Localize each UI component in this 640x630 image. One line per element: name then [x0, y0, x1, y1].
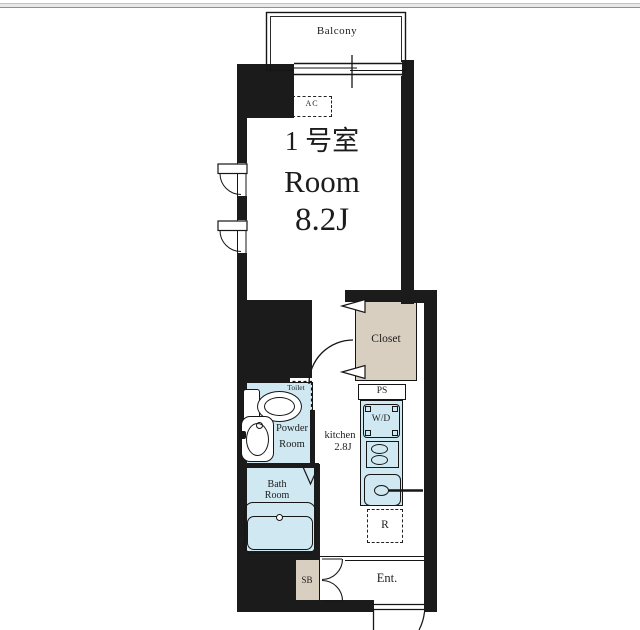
vanity-drain	[256, 422, 263, 429]
balcony-label: Balcony	[317, 26, 357, 37]
stove-burner	[371, 455, 388, 465]
toilet-label: Toilet	[287, 384, 304, 392]
plan-linework	[0, 0, 640, 630]
washer-dryer-foot	[365, 406, 371, 412]
closet-label: Closet	[371, 334, 400, 346]
toilet-bowl-inner	[264, 397, 295, 416]
unit-number-label: 1 号室	[285, 128, 359, 155]
shoe-box-label: SB	[301, 576, 312, 585]
kitchen-size-label: 2.8J	[334, 443, 351, 454]
pipe-space-label: PS	[377, 387, 388, 397]
refrigerator-label: R	[381, 520, 389, 532]
powder-room-label-line1: Powder	[276, 424, 308, 435]
washer-dryer-label: W/D	[372, 415, 390, 425]
kitchen-sink-basin	[374, 485, 389, 496]
washer-dryer-foot	[392, 406, 398, 412]
washer-dryer-foot	[392, 430, 398, 436]
entrance-label: Ent.	[377, 572, 397, 585]
room-label: Room	[284, 166, 360, 197]
floor-plan: Balcony AC 1 号室 Room 8.2J Closet PS Toil…	[0, 0, 640, 630]
vanity-faucet	[239, 431, 246, 439]
kitchen-label-line1: kitchen	[325, 431, 356, 442]
bath-room-label-line1: Bath	[268, 480, 287, 490]
bathtub-drain	[276, 514, 283, 521]
room-size-label: 8.2J	[295, 204, 349, 237]
ac-label: AC	[305, 100, 318, 108]
bathtub-inner	[247, 516, 313, 550]
bath-room-label-line2: Room	[265, 491, 289, 501]
stove-burner	[371, 444, 388, 454]
powder-room-label-line2: Room	[279, 440, 305, 451]
washer-dryer-foot	[365, 430, 371, 436]
